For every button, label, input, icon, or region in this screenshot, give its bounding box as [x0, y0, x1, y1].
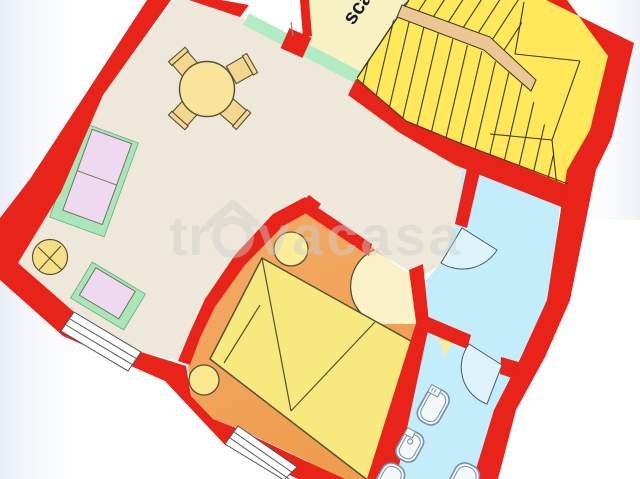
svg-text:tr: tr: [169, 204, 210, 267]
svg-text:vacasa: vacasa: [258, 204, 463, 267]
